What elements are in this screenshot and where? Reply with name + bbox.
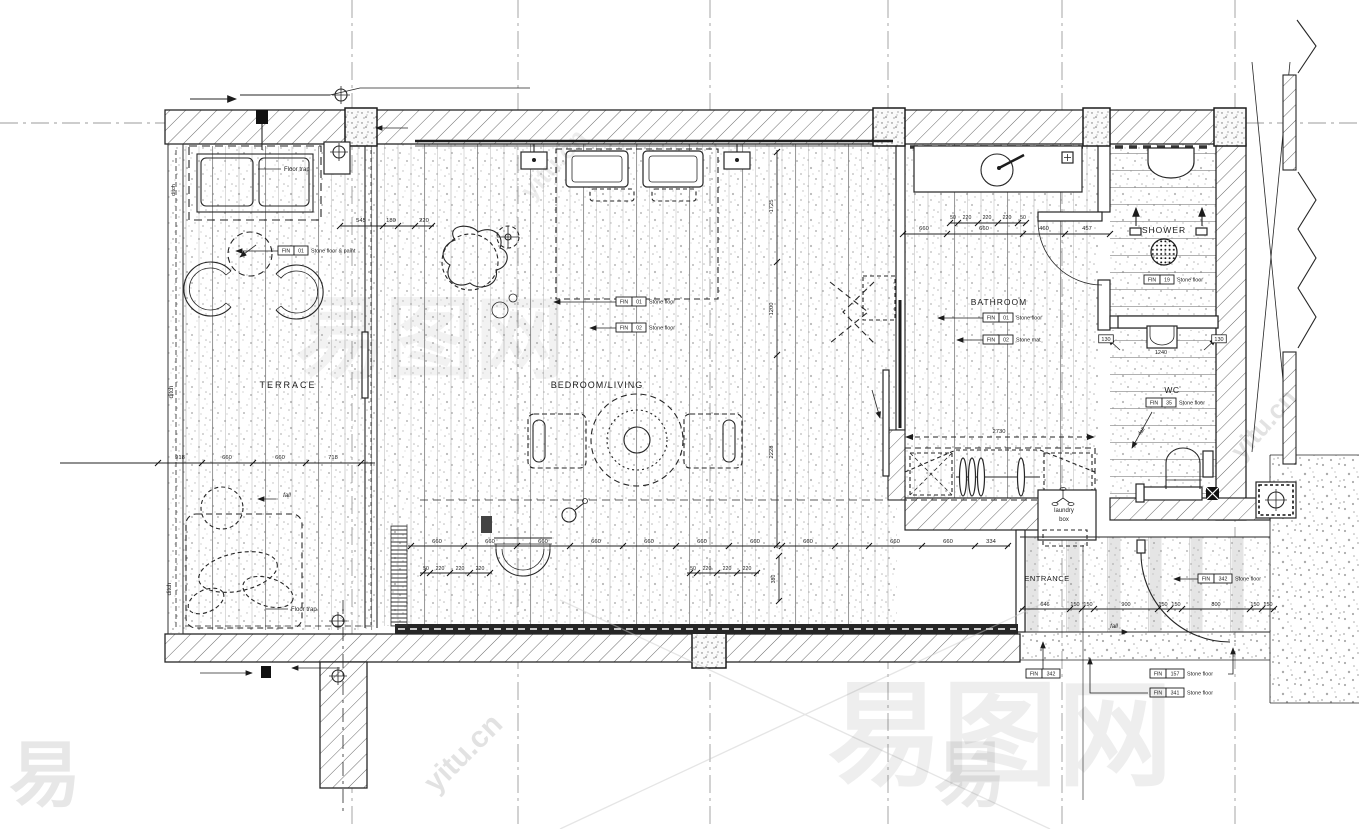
svg-text:220: 220 [963,215,972,221]
svg-text:150: 150 [1158,602,1167,608]
svg-text:FIN: FIN [987,338,996,344]
wc-basin [1147,326,1177,348]
svg-text:220: 220 [456,566,465,572]
svg-text:150: 150 [1070,602,1079,608]
wall-fixture [1203,451,1213,477]
svg-text:660: 660 [275,455,285,461]
svg-text:342: 342 [1219,577,1228,583]
svg-text:646: 646 [1040,602,1049,608]
svg-text:380: 380 [771,575,777,584]
floor-plan-drawing: 9186606607185451802206606604604575022022… [0,0,1359,829]
svg-text:易: 易 [934,736,1006,816]
downpipe [256,110,268,124]
column-gate [692,632,726,668]
shower-drain [1151,239,1177,265]
svg-text:ditch: ditch [171,184,177,196]
svg-text:2730: 2730 [993,429,1006,435]
svg-text:WC: WC [1164,385,1179,395]
svg-text:220: 220 [983,215,992,221]
svg-text:718: 718 [328,455,338,461]
svg-text:fall: fall [1110,624,1118,630]
svg-text:660: 660 [644,539,654,545]
svg-text:ENTRANCE: ENTRANCE [1024,574,1069,583]
svg-text:19: 19 [1164,278,1170,284]
svg-text:457: 457 [1082,226,1092,232]
svg-text:800: 800 [1211,602,1220,608]
svg-text:FIN: FIN [1148,278,1157,284]
svg-text:ditch: ditch [169,386,175,399]
column-4 [1214,108,1246,146]
svg-text:660: 660 [697,539,707,545]
svg-text:150: 150 [1250,602,1259,608]
svg-text:2228: 2228 [769,446,775,459]
svg-text:Stone floor: Stone floor [649,326,675,332]
column-3 [1083,108,1110,146]
wall-stub-lower [320,662,367,788]
paver-drain [1256,482,1296,518]
svg-text:FIN: FIN [620,326,629,332]
floor-lamp [481,516,492,533]
svg-text:FIN: FIN [1150,401,1159,407]
shower-bench [1148,148,1194,178]
wall-bottom [165,634,1020,662]
svg-text:150: 150 [1083,602,1092,608]
svg-text:900: 900 [1121,602,1130,608]
svg-text:180: 180 [386,218,396,224]
svg-text:660: 660 [919,226,929,232]
curtain-coil [391,526,407,626]
svg-text:1200: 1200 [769,303,775,316]
svg-text:220: 220 [703,566,712,572]
svg-text:220: 220 [476,566,485,572]
wall-wc-bottom [1110,498,1270,520]
svg-text:150: 150 [1171,602,1180,608]
svg-text:易图网: 易图网 [295,290,565,390]
wall-bath-shower-b [1098,280,1110,330]
shaft-symbol [1206,487,1219,500]
svg-text:ditch: ditch [167,583,173,596]
wall-bath-shower-a [1098,144,1110,212]
svg-text:Stone floor: Stone floor [1016,316,1042,322]
svg-text:FIN: FIN [987,316,996,322]
svg-text:Stone floor: Stone floor [1179,401,1205,407]
svg-text:660: 660 [890,539,900,545]
column-1 [345,108,377,146]
svg-text:660: 660 [591,539,601,545]
wall-right [1216,144,1246,520]
svg-text:660: 660 [803,539,813,545]
svg-text:545: 545 [356,218,366,224]
svg-text:130: 130 [1101,337,1110,343]
svg-text:35: 35 [1166,401,1172,407]
svg-text:660: 660 [485,539,495,545]
svg-text:460: 460 [1039,226,1049,232]
svg-text:Floor trap: Floor trap [284,167,310,173]
svg-text:FIN: FIN [1202,577,1211,583]
svg-text:220: 220 [743,566,752,572]
svg-text:660: 660 [979,226,989,232]
svg-text:yitu.cn: yitu.cn [417,707,509,799]
svg-text:220: 220 [436,566,445,572]
svg-text:FIN: FIN [620,300,629,306]
svg-text:FIN: FIN [282,249,291,255]
svg-text:660: 660 [538,539,548,545]
svg-text:1725: 1725 [769,200,775,213]
svg-text:660: 660 [943,539,953,545]
svg-text:334: 334 [986,539,996,545]
svg-text:01: 01 [298,249,304,255]
svg-text:BATHROOM: BATHROOM [971,297,1027,307]
svg-text:Stone floor & paint: Stone floor & paint [311,249,356,255]
svg-text:Stone floor: Stone floor [1235,577,1261,583]
svg-text:Stone floor: Stone floor [1187,691,1213,697]
svg-text:易: 易 [9,736,81,816]
svg-text:Floor trap: Floor trap [291,607,317,613]
pier-bath [888,430,905,500]
svg-text:laundry: laundry [1054,508,1074,514]
svg-text:Stone floor: Stone floor [649,300,675,306]
svg-text:220: 220 [723,566,732,572]
svg-text:1240: 1240 [1155,350,1167,356]
svg-text:Stone floor: Stone floor [1177,278,1203,284]
svg-text:220: 220 [1003,215,1012,221]
svg-text:130: 130 [1214,337,1223,343]
svg-text:50: 50 [423,566,429,572]
svg-text:fall: fall [283,493,291,499]
svg-text:50: 50 [950,215,956,221]
svg-text:50: 50 [1020,215,1026,221]
floor-plan-canvas: 9186606607185451802206606604604575022022… [0,0,1359,829]
svg-text:660: 660 [222,455,232,461]
svg-text:Stone floor: Stone floor [1187,672,1213,678]
svg-text:660: 660 [750,539,760,545]
svg-text:150: 150 [1263,602,1272,608]
svg-text:box: box [1059,517,1069,523]
svg-text:918: 918 [175,455,185,461]
wall-wardrobe-bottom [905,498,1040,530]
svg-text:02: 02 [636,326,642,332]
wall-top [165,110,1243,144]
svg-text:50: 50 [690,566,696,572]
svg-text:SHOWER: SHOWER [1142,225,1186,235]
svg-text:220: 220 [419,218,429,224]
svg-text:01: 01 [1003,316,1009,322]
svg-text:02: 02 [1003,338,1009,344]
svg-text:660: 660 [432,539,442,545]
wall-control [1062,152,1073,163]
svg-text:01: 01 [636,300,642,306]
svg-text:Stone mat: Stone mat [1016,338,1041,344]
